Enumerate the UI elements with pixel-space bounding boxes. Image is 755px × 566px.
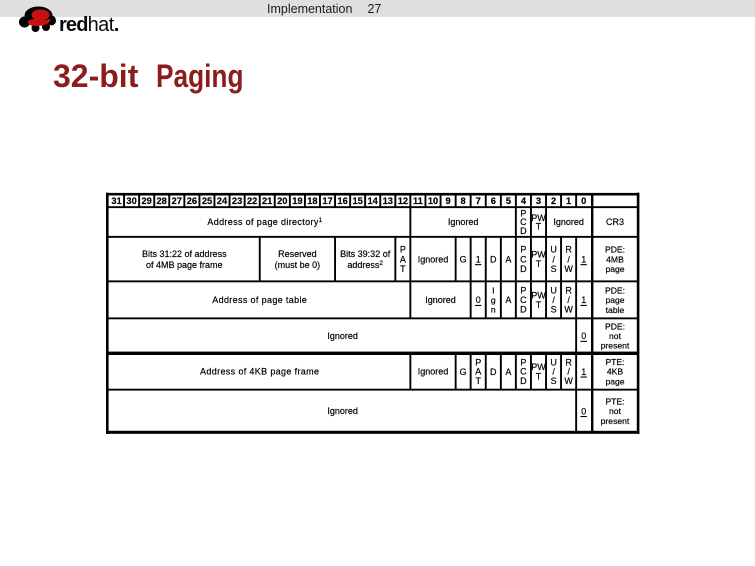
- svg-text:U: U: [550, 245, 557, 255]
- svg-text:0: 0: [581, 331, 586, 341]
- svg-text:4KB: 4KB: [607, 367, 624, 377]
- svg-text:S: S: [551, 264, 557, 274]
- svg-text:13: 13: [383, 196, 393, 206]
- svg-text:Ignored: Ignored: [553, 217, 584, 227]
- svg-text:CR3: CR3: [606, 217, 624, 227]
- svg-text:9: 9: [446, 196, 451, 206]
- svg-text:D: D: [520, 376, 527, 386]
- svg-text:0: 0: [476, 295, 481, 305]
- svg-text:PDE:: PDE:: [605, 245, 625, 255]
- svg-text:page: page: [605, 376, 624, 386]
- svg-text:1: 1: [581, 367, 586, 377]
- svg-text:W: W: [564, 304, 573, 314]
- svg-text:D: D: [490, 255, 497, 265]
- svg-text:28: 28: [157, 196, 167, 206]
- svg-text:Reserved: Reserved: [278, 249, 317, 259]
- svg-text:Address of page table: Address of page table: [212, 295, 307, 305]
- svg-text:0: 0: [581, 406, 586, 416]
- svg-text:18: 18: [307, 196, 317, 206]
- svg-text:page: page: [605, 295, 624, 305]
- svg-text:29: 29: [142, 196, 152, 206]
- svg-text:1: 1: [581, 255, 586, 265]
- svg-text:Ignored: Ignored: [448, 217, 479, 227]
- svg-text:not: not: [609, 331, 622, 341]
- svg-text:W: W: [564, 264, 573, 274]
- svg-text:Bits 31:22 of address: Bits 31:22 of address: [142, 249, 227, 259]
- svg-text:S: S: [551, 376, 557, 386]
- svg-text:R: R: [565, 245, 572, 255]
- svg-text:Ignored: Ignored: [327, 331, 358, 341]
- svg-text:T: T: [536, 371, 542, 381]
- svg-text:1: 1: [581, 295, 586, 305]
- svg-text:23: 23: [232, 196, 242, 206]
- svg-text:6: 6: [491, 196, 496, 206]
- svg-text:25: 25: [202, 196, 212, 206]
- svg-text:PDE:: PDE:: [605, 321, 625, 331]
- svg-text:W: W: [564, 376, 573, 386]
- svg-text:Address of page directory1: Address of page directory1: [207, 217, 322, 227]
- svg-text:D: D: [520, 264, 527, 274]
- svg-text:/: /: [567, 254, 570, 264]
- svg-text:5: 5: [506, 196, 511, 206]
- svg-text:3: 3: [536, 196, 541, 206]
- svg-text:S: S: [551, 304, 557, 314]
- svg-text:/: /: [552, 254, 555, 264]
- svg-text:A: A: [505, 295, 511, 305]
- svg-text:21: 21: [262, 196, 272, 206]
- svg-text:not: not: [609, 406, 622, 416]
- svg-text:Bits 39:32 of: Bits 39:32 of: [340, 249, 391, 259]
- svg-text:P: P: [400, 245, 406, 255]
- svg-text:Address of 4KB page frame: Address of 4KB page frame: [200, 367, 319, 377]
- svg-text:(must be 0): (must be 0): [275, 260, 321, 270]
- svg-text:PTE:: PTE:: [605, 357, 624, 367]
- svg-text:27: 27: [172, 196, 182, 206]
- svg-text:of 4MB page frame: of 4MB page frame: [146, 260, 223, 270]
- svg-text:A: A: [505, 367, 511, 377]
- svg-text:PTE:: PTE:: [605, 397, 624, 407]
- svg-text:D: D: [490, 367, 497, 377]
- svg-text:12: 12: [398, 196, 408, 206]
- svg-text:A: A: [400, 254, 406, 264]
- svg-text:T: T: [536, 259, 542, 269]
- svg-text:2: 2: [551, 196, 556, 206]
- svg-text:10: 10: [428, 196, 438, 206]
- svg-text:D: D: [520, 226, 527, 236]
- svg-text:1: 1: [566, 196, 571, 206]
- svg-text:14: 14: [368, 196, 379, 206]
- svg-text:present: present: [601, 341, 630, 351]
- svg-text:31: 31: [111, 196, 121, 206]
- svg-text:C: C: [520, 254, 527, 264]
- svg-text:T: T: [536, 222, 542, 232]
- svg-text:26: 26: [187, 196, 197, 206]
- svg-text:P: P: [520, 245, 526, 255]
- svg-text:20: 20: [277, 196, 287, 206]
- svg-text:address2: address2: [347, 260, 383, 270]
- svg-text:present: present: [601, 416, 630, 426]
- svg-text:n: n: [491, 304, 496, 314]
- svg-text:30: 30: [126, 196, 136, 206]
- svg-text:1: 1: [476, 255, 481, 265]
- svg-text:Ignored: Ignored: [418, 254, 449, 264]
- svg-text:T: T: [536, 300, 542, 310]
- svg-text:17: 17: [322, 196, 332, 206]
- svg-text:table: table: [606, 305, 625, 315]
- svg-text:page: page: [605, 264, 624, 274]
- svg-text:4MB: 4MB: [606, 254, 624, 264]
- svg-text:19: 19: [292, 196, 302, 206]
- svg-text:Ignored: Ignored: [425, 295, 456, 305]
- svg-text:A: A: [505, 255, 511, 265]
- svg-text:G: G: [460, 367, 467, 377]
- svg-text:8: 8: [461, 196, 466, 206]
- svg-text:7: 7: [476, 196, 481, 206]
- svg-text:4: 4: [521, 196, 527, 206]
- svg-text:Ignored: Ignored: [418, 367, 449, 377]
- svg-text:11: 11: [413, 196, 423, 206]
- svg-text:22: 22: [247, 196, 257, 206]
- svg-text:G: G: [460, 255, 467, 265]
- svg-text:PDE:: PDE:: [605, 285, 625, 295]
- svg-text:15: 15: [353, 196, 363, 206]
- svg-text:T: T: [400, 264, 406, 274]
- svg-text:Ignored: Ignored: [327, 406, 358, 416]
- svg-text:0: 0: [581, 196, 586, 206]
- svg-text:T: T: [475, 376, 481, 386]
- svg-text:16: 16: [337, 196, 347, 206]
- svg-text:24: 24: [217, 196, 228, 206]
- svg-text:D: D: [520, 304, 527, 314]
- svg-text:PW: PW: [531, 250, 546, 260]
